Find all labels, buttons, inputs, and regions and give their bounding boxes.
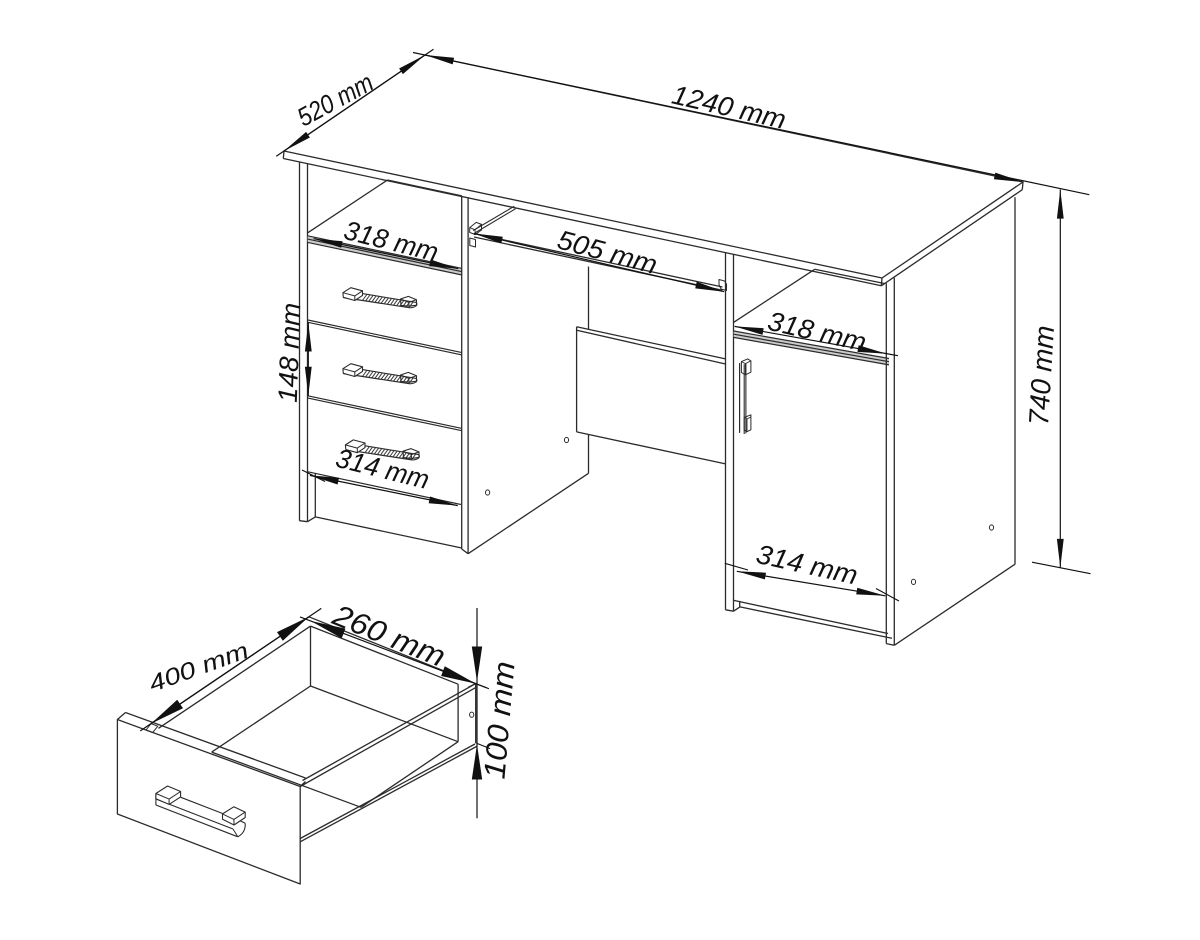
- svg-text:740 mm: 740 mm: [1023, 325, 1060, 427]
- svg-text:148 mm: 148 mm: [273, 302, 306, 403]
